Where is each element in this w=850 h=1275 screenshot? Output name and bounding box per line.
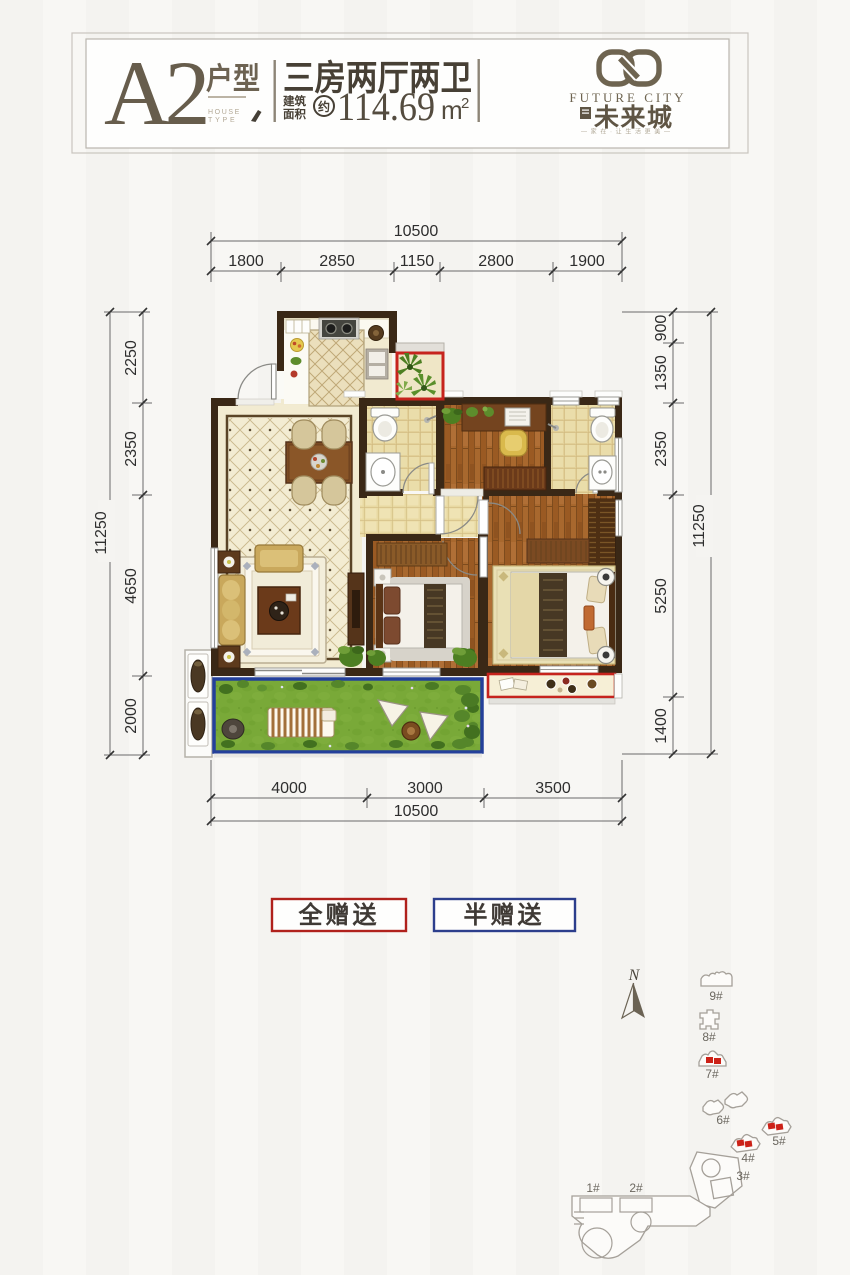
- svg-text:1400: 1400: [653, 708, 670, 744]
- svg-text:2250: 2250: [123, 340, 140, 376]
- svg-text:11250: 11250: [691, 504, 708, 547]
- svg-text:10500: 10500: [394, 803, 439, 820]
- svg-text:7#: 7#: [705, 1067, 719, 1081]
- svg-text:户型: 户型: [206, 63, 260, 96]
- svg-text:2350: 2350: [653, 431, 670, 467]
- svg-text:6#: 6#: [716, 1113, 730, 1127]
- svg-text:2000: 2000: [123, 698, 140, 734]
- svg-text:建筑: 建筑: [283, 94, 306, 108]
- svg-text:5250: 5250: [653, 578, 670, 614]
- svg-text:11250: 11250: [93, 511, 110, 554]
- svg-text:9#: 9#: [709, 989, 723, 1003]
- svg-text:1150: 1150: [400, 253, 435, 270]
- svg-text:m: m: [441, 95, 463, 125]
- svg-text:2: 2: [461, 95, 469, 112]
- svg-text:3#: 3#: [736, 1169, 750, 1183]
- svg-text:10500: 10500: [394, 223, 439, 240]
- svg-text:3000: 3000: [407, 780, 443, 797]
- svg-text:FUTURE CITY: FUTURE CITY: [569, 90, 686, 105]
- svg-text:1350: 1350: [653, 355, 670, 391]
- svg-text:8#: 8#: [702, 1030, 716, 1044]
- svg-text:900: 900: [653, 315, 670, 342]
- svg-text:2850: 2850: [319, 253, 355, 270]
- svg-text:1900: 1900: [569, 253, 605, 270]
- svg-text:2800: 2800: [478, 253, 514, 270]
- svg-text:面积: 面积: [283, 107, 306, 121]
- svg-text:4650: 4650: [123, 568, 140, 604]
- svg-text:1800: 1800: [228, 253, 264, 270]
- svg-text:A2: A2: [104, 42, 205, 144]
- svg-text:半赠送: 半赠送: [464, 901, 545, 929]
- svg-text:1#: 1#: [586, 1181, 600, 1195]
- svg-text:— 家 在 · 让 生 活 更 美 —: — 家 在 · 让 生 活 更 美 —: [581, 128, 671, 136]
- svg-text:HOUSE: HOUSE: [208, 109, 241, 116]
- svg-text:5#: 5#: [772, 1134, 786, 1148]
- svg-text:4000: 4000: [271, 780, 307, 797]
- svg-text:4#: 4#: [741, 1151, 755, 1165]
- svg-text:全赠送: 全赠送: [298, 901, 380, 929]
- svg-text:TYPE: TYPE: [208, 117, 237, 124]
- svg-text:3500: 3500: [535, 780, 571, 797]
- svg-text:未来城: 未来城: [594, 104, 674, 132]
- svg-text:114.69: 114.69: [337, 84, 435, 129]
- svg-text:约: 约: [318, 99, 330, 114]
- svg-text:N: N: [628, 967, 641, 984]
- svg-text:2350: 2350: [123, 431, 140, 467]
- svg-text:2#: 2#: [629, 1181, 643, 1195]
